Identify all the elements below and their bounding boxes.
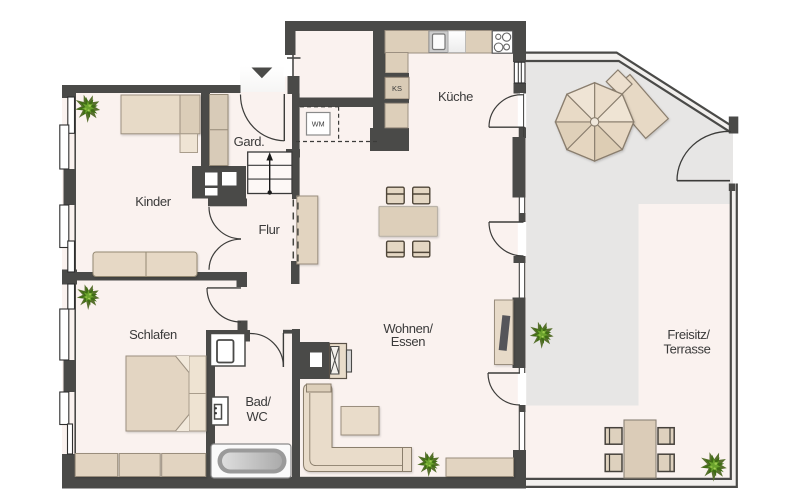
svg-text:Küche: Küche [438,89,473,104]
svg-text:Gard.: Gard. [234,134,265,149]
svg-text:Freisitz/: Freisitz/ [667,327,710,342]
svg-text:Kinder: Kinder [135,194,171,209]
svg-text:Flur: Flur [259,222,281,237]
svg-text:KS: KS [392,84,402,93]
svg-text:Terrasse: Terrasse [663,341,710,356]
svg-text:Schlafen: Schlafen [129,327,177,342]
svg-text:Bad/: Bad/ [245,394,271,409]
svg-text:Essen: Essen [391,334,426,349]
svg-text:WC: WC [247,409,268,424]
svg-text:WM: WM [312,120,325,129]
